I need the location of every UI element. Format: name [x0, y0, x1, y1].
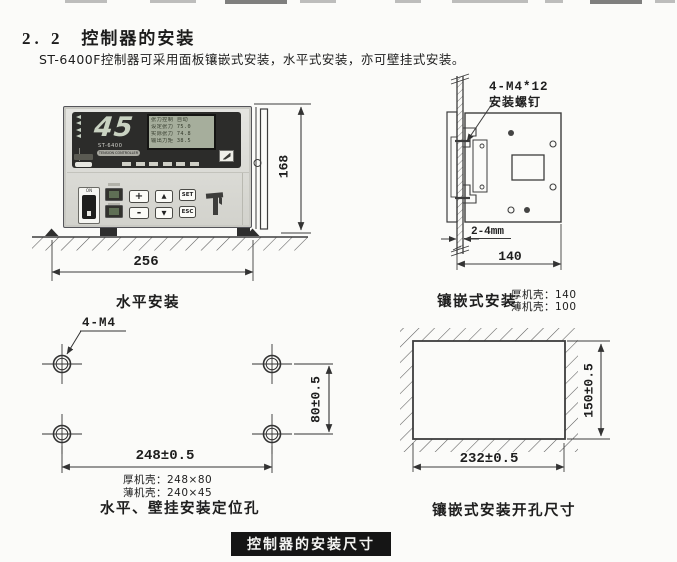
- screw-spec-label: 4-M4*12: [489, 80, 549, 94]
- function-key-2: [105, 205, 123, 218]
- key-label-tag: [108, 183, 120, 186]
- controller-front-panel: 45 ST-6400 TENSION CONTROLLER 张力控制 自动 设定…: [63, 106, 252, 228]
- technical-linework: [0, 0, 677, 562]
- caption-positioning-holes: 水平、壁挂安装定位孔: [100, 497, 260, 518]
- screw-name-label: 安装螺钉: [489, 93, 541, 110]
- section-heading: 2. 2 控制器的安装: [22, 24, 195, 49]
- brand-mark-icon: [219, 150, 234, 162]
- hole-spec-label: 4-M4: [82, 316, 116, 330]
- caption-horizontal-mount: 水平安装: [106, 291, 190, 312]
- intro-text: ST-6400F控制器可采用面板镶嵌式安装，水平式安装，亦可壁挂式安装。: [39, 49, 465, 68]
- width-dim-248: 248±0.5: [125, 448, 205, 464]
- width-dim-256: 256: [116, 254, 176, 270]
- panel-divider: [67, 172, 249, 173]
- panel-thickness-dim: 2-4mm: [464, 226, 511, 239]
- caption-cutout: 镶嵌式安装开孔尺寸: [432, 499, 576, 520]
- display-band: 45 ST-6400 TENSION CONTROLLER 张力控制 自动 设定…: [72, 112, 241, 168]
- esc-key: ESC: [179, 206, 196, 218]
- power-rocker-icon: [82, 195, 96, 219]
- t-logo-icon: [213, 194, 218, 215]
- power-switch-label: ON: [79, 188, 99, 194]
- plus-key: +: [129, 190, 149, 203]
- footer-banner-text: 控制器的安装尺寸: [247, 534, 375, 554]
- tension-tag: [74, 154, 93, 160]
- up-key: ▲: [155, 190, 173, 203]
- minus-key: -: [129, 207, 149, 219]
- lcd-line: 输出力矩 38.5: [151, 138, 212, 145]
- width-dim-232: 232±0.5: [449, 451, 529, 467]
- model-label: ST-6400: [98, 143, 123, 149]
- lcd-line: 设定张力 75.0: [151, 124, 212, 131]
- t-logo-icon: [219, 196, 222, 205]
- manual-page: 2. 2 控制器的安装 ST-6400F控制器可采用面板镶嵌式安装，水平式安装，…: [0, 0, 677, 562]
- note-thin-case-depth: 薄机壳：100: [511, 299, 577, 314]
- lcd-line: 实际张力 74.8: [151, 131, 212, 138]
- lcd-line: 张力控制 自动: [151, 117, 212, 124]
- model-subtitle: TENSION CONTROLLER: [97, 150, 140, 156]
- seven-segment-display: 45: [92, 112, 144, 146]
- height-dim-150: 150±0.5: [582, 361, 597, 421]
- caption-panel-mount: 镶嵌式安装: [437, 290, 517, 311]
- function-key-1: [105, 188, 123, 201]
- height-dim-80: 80±0.5: [309, 370, 324, 430]
- footer-banner: 控制器的安装尺寸: [231, 532, 391, 556]
- tag-pill: [75, 162, 92, 167]
- lcd-screen: 张力控制 自动 设定张力 75.0 实际张力 74.8 输出力矩 38.5: [147, 114, 216, 150]
- status-label-strip: [122, 162, 199, 166]
- down-key: ▼: [155, 207, 173, 219]
- section-number: 2. 2: [22, 29, 64, 48]
- height-dim-168: 168: [277, 147, 292, 187]
- power-switch: ON: [78, 187, 100, 224]
- panel-divider-right: [242, 173, 243, 225]
- set-key: SET: [179, 189, 196, 201]
- depth-dim-140: 140: [485, 249, 535, 264]
- section-title: 控制器的安装: [81, 29, 195, 49]
